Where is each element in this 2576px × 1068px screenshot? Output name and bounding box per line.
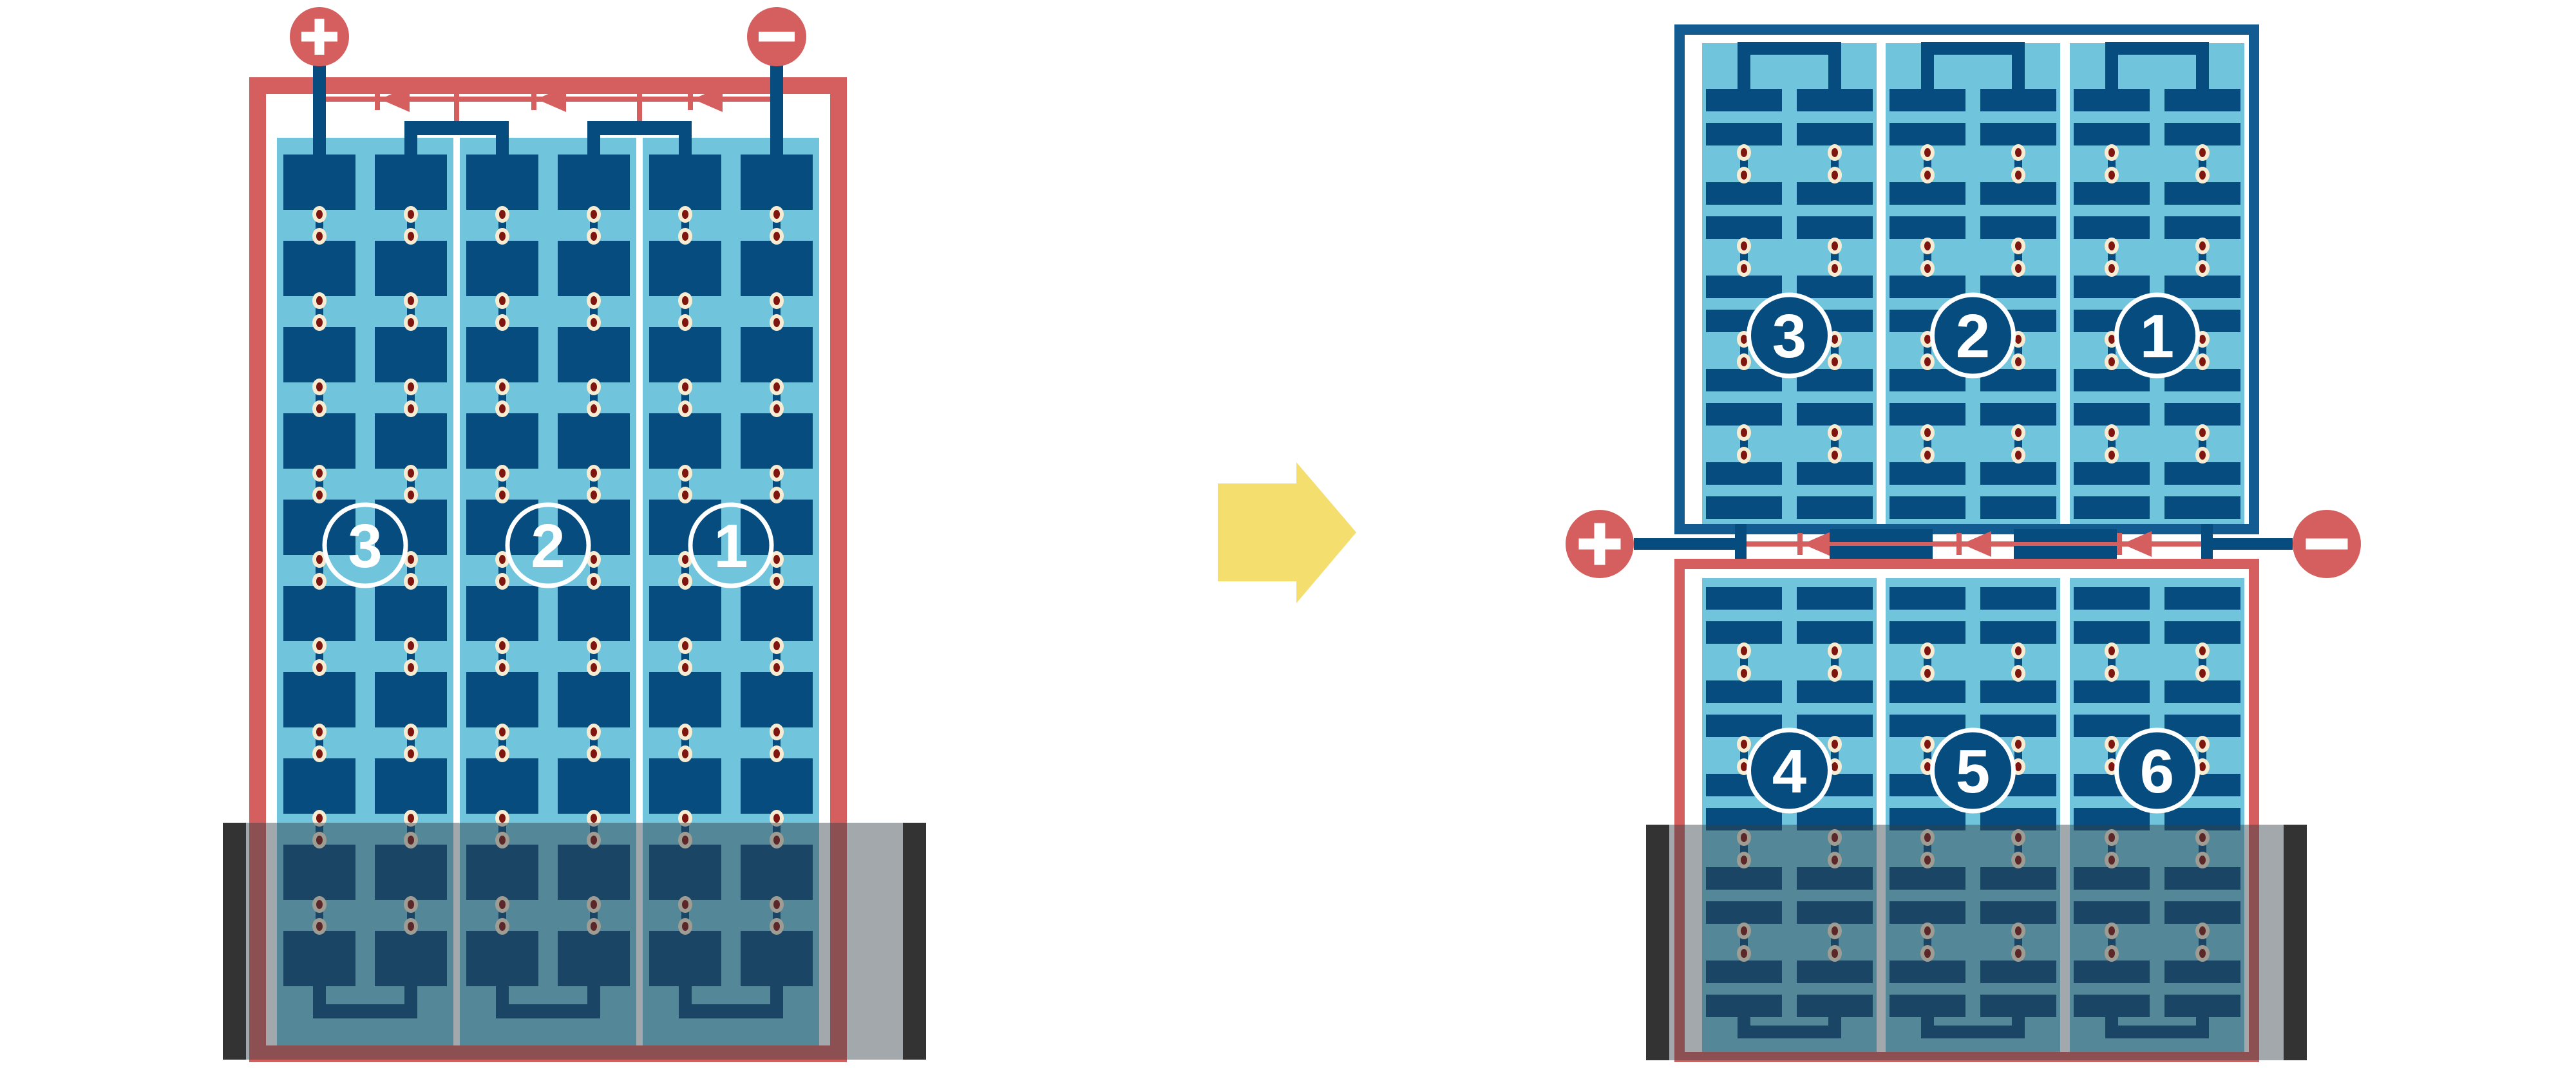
solder-dot-core [1924, 171, 1931, 180]
cell [283, 413, 355, 469]
solder-dot-core [682, 469, 688, 478]
bypass-diode-rail [1747, 531, 2201, 557]
solder-dot-core [2108, 669, 2115, 678]
half-cell [2074, 462, 2150, 485]
solder-dot-core [499, 491, 506, 500]
terminal-glyph-v [315, 19, 325, 55]
solder-dot-core [591, 232, 597, 241]
solder-dot-core [408, 663, 414, 672]
half-cell [1889, 680, 1965, 703]
cell [283, 586, 355, 641]
diode-cathode-bar [375, 88, 380, 110]
solder-dot-core [682, 641, 688, 650]
solder-dot-core [316, 210, 323, 219]
solder-dot-core [499, 814, 506, 823]
half-cell [1706, 621, 1782, 644]
half-cell [2164, 123, 2240, 145]
u-bar [2105, 42, 2209, 55]
terminal-glyph-h [759, 32, 795, 42]
cell [375, 327, 447, 382]
solder-dot-core [408, 641, 414, 650]
cell [375, 241, 447, 296]
solder-dot-core [591, 404, 597, 413]
cell [466, 241, 538, 296]
u-leg [1921, 42, 1934, 97]
cell [741, 586, 813, 641]
solder-dot-core [1924, 646, 1931, 655]
solder-dot-core [591, 555, 597, 564]
diode-triangle [1962, 531, 1991, 557]
half-cell [1797, 276, 1873, 298]
solder-dot-core [2108, 451, 2115, 460]
cell [375, 672, 447, 727]
half-cell [1889, 496, 1965, 519]
solder-dot-core [2108, 646, 2115, 655]
half-cell [1706, 680, 1782, 703]
string-label: 5 [1956, 737, 1990, 806]
solder-dot-core [316, 555, 323, 564]
bridge-leg [679, 121, 692, 162]
terminal-wire [2201, 538, 2293, 550]
half-cell [2164, 403, 2240, 426]
solder-dot-core [408, 577, 414, 586]
half-cell [1706, 123, 1782, 145]
solder-dot-core [682, 210, 688, 219]
diode-triangle [2122, 531, 2152, 557]
half-cell [1980, 182, 2056, 205]
solder-dot-core [1741, 171, 1747, 180]
half-cell [2164, 182, 2240, 205]
solder-dot-core [2108, 241, 2115, 250]
solder-dot-core [1741, 264, 1747, 273]
cell [649, 413, 721, 469]
cell [558, 758, 630, 814]
solder-dot-core [591, 318, 597, 327]
terminal-minus-icon [2293, 510, 2361, 578]
solder-dot-core [499, 232, 506, 241]
solder-dot-core [2199, 451, 2206, 460]
bypass-diode-icon [1956, 531, 1991, 557]
cell [375, 155, 447, 210]
solder-dot-core [1832, 669, 1838, 678]
solder-dot-core [773, 296, 780, 305]
solder-dot-core [316, 749, 323, 758]
solder-dot-core [682, 296, 688, 305]
bridge-leg [496, 121, 509, 162]
u-bar [1738, 42, 1841, 55]
string-label: 6 [2140, 737, 2174, 806]
solder-dot-core [1832, 451, 1838, 460]
solder-dot-core [773, 577, 780, 586]
solder-dot-core [2108, 740, 2115, 749]
solder-dot-core [1924, 264, 1931, 273]
solder-dot-core [408, 491, 414, 500]
solder-dot-core [2015, 451, 2022, 460]
solder-dot-core [1924, 335, 1931, 344]
solder-dot-core [773, 491, 780, 500]
u-leg [2105, 42, 2118, 97]
solder-dot-core [2108, 171, 2115, 180]
string-badge: 1 [2117, 295, 2198, 376]
diagram-canvas: 321321456 [0, 0, 2576, 1068]
string-label: 3 [348, 512, 382, 581]
solder-dot-core [2199, 148, 2206, 157]
half-cell [2074, 276, 2150, 298]
solder-dot-core [2199, 646, 2206, 655]
solder-dot-core [773, 641, 780, 650]
solder-dot-core [2015, 669, 2022, 678]
cell [283, 758, 355, 814]
cell [466, 758, 538, 814]
solder-dot-core [499, 663, 506, 672]
half-cell [1980, 216, 2056, 239]
solder-dot-core [1832, 148, 1838, 157]
cell [466, 672, 538, 727]
half-cell [2164, 276, 2240, 298]
cell [283, 241, 355, 296]
cell [558, 586, 630, 641]
solder-dot-core [408, 296, 414, 305]
solder-dot-core [2015, 357, 2022, 366]
half-cell [2074, 123, 2150, 145]
cell [466, 413, 538, 469]
solder-dot-core [2015, 171, 2022, 180]
transform-arrow-icon [1218, 462, 1356, 603]
cell [558, 672, 630, 727]
cell [741, 672, 813, 727]
solder-dot-core [1832, 335, 1838, 344]
solder-dot-core [2108, 428, 2115, 437]
solder-dot-core [316, 469, 323, 478]
bridge-leg [404, 121, 417, 162]
solder-dot-core [1741, 148, 1747, 157]
solder-dot-core [408, 469, 414, 478]
half-cell [1706, 587, 1782, 610]
cell [741, 241, 813, 296]
diode-junction-tick [454, 90, 459, 121]
half-cell [1797, 496, 1873, 519]
half-cell [1980, 680, 2056, 703]
solder-dot-core [499, 641, 506, 650]
solder-dot-core [2108, 357, 2115, 366]
shade-group [1646, 825, 2307, 1060]
cell [649, 327, 721, 382]
solder-dot-core [773, 318, 780, 327]
solder-dot-core [316, 232, 323, 241]
solder-dot-core [773, 663, 780, 672]
solder-dot-core [773, 232, 780, 241]
solder-dot-core [591, 814, 597, 823]
diode-cathode-bar [531, 88, 536, 110]
solder-dot-core [2199, 357, 2206, 366]
solder-dot-core [316, 491, 323, 500]
solder-dot-core [591, 210, 597, 219]
solder-dot-core [408, 814, 414, 823]
solder-dot-core [773, 469, 780, 478]
solder-dot-core [2199, 740, 2206, 749]
solder-dot-core [2199, 171, 2206, 180]
solder-dot-core [1741, 357, 1747, 366]
solder-dot-core [1924, 762, 1931, 771]
string-label: 1 [714, 512, 748, 581]
bridge-bar [404, 121, 509, 135]
solder-dot-core [408, 210, 414, 219]
diode-cathode-bar [688, 88, 693, 110]
diode-cathode-bar [1956, 533, 1962, 555]
bridge-leg [587, 121, 600, 162]
solder-dot-core [682, 491, 688, 500]
solder-dot-core [1832, 740, 1838, 749]
solder-dot-core [2015, 148, 2022, 157]
terminal-stem [770, 64, 783, 162]
solder-dot-core [591, 749, 597, 758]
string-label: 1 [2140, 302, 2174, 371]
solar-wiring-diagram: 321321456 [0, 0, 2576, 1068]
solder-dot-core [2199, 335, 2206, 344]
half-cell [2164, 462, 2240, 485]
solder-dot-core [499, 210, 506, 219]
solder-dot-core [773, 727, 780, 736]
solder-dot-core [682, 749, 688, 758]
solder-dot-core [2199, 241, 2206, 250]
solder-dot-core [682, 814, 688, 823]
u-leg [1738, 42, 1750, 97]
solder-dot-core [591, 641, 597, 650]
solder-dot-core [499, 318, 506, 327]
string-label: 2 [1956, 302, 1990, 371]
solder-dot-core [2015, 428, 2022, 437]
solder-dot-core [1832, 241, 1838, 250]
solder-dot-core [316, 814, 323, 823]
cell [649, 155, 721, 210]
shade-group [223, 823, 926, 1060]
solder-dot-core [1832, 357, 1838, 366]
half-cell [1797, 462, 1873, 485]
half-cell [1797, 680, 1873, 703]
solder-dot-core [499, 727, 506, 736]
solder-dot-core [682, 577, 688, 586]
diode-cathode-bar [1797, 533, 1803, 555]
solder-dot-core [591, 577, 597, 586]
solder-dot-core [2015, 740, 2022, 749]
solder-dot-core [2015, 264, 2022, 273]
half-cell [1797, 123, 1873, 145]
solder-dot-core [1741, 669, 1747, 678]
solder-dot-core [2015, 762, 2022, 771]
diode-junction-tick [637, 90, 642, 121]
solder-dot-core [2108, 335, 2115, 344]
half-cell [1797, 587, 1873, 610]
half-cell [1889, 403, 1965, 426]
solder-dot-core [591, 663, 597, 672]
terminal-plus-icon [1566, 510, 1634, 578]
solder-dot-core [1741, 241, 1747, 250]
solder-dot-core [773, 382, 780, 391]
solder-dot-core [591, 727, 597, 736]
shade-bar [2284, 825, 2307, 1060]
half-cell [2164, 621, 2240, 644]
diode-triangle [1803, 531, 1832, 557]
cell [741, 155, 813, 210]
cell [375, 586, 447, 641]
solder-dot-core [408, 232, 414, 241]
solder-dot-core [773, 404, 780, 413]
cell [283, 155, 355, 210]
half-cell [1980, 462, 2056, 485]
terminal-glyph-v [1595, 523, 1605, 565]
terminal-stem [313, 64, 326, 162]
half-cell [2074, 496, 2150, 519]
solder-dot-core [499, 749, 506, 758]
terminal-minus-icon [747, 7, 806, 66]
cell [466, 586, 538, 641]
string-badge: 5 [1933, 730, 2014, 811]
solder-dot-core [1924, 451, 1931, 460]
half-cell [2164, 680, 2240, 703]
cell [558, 413, 630, 469]
half-cell [1797, 182, 1873, 205]
string-badge: 6 [2117, 730, 2198, 811]
solder-dot-core [2199, 762, 2206, 771]
u-leg [1828, 42, 1841, 97]
half-cell [1797, 403, 1873, 426]
cell [466, 155, 538, 210]
half-cell [1706, 403, 1782, 426]
solder-dot-core [591, 491, 597, 500]
cell [649, 672, 721, 727]
solder-dot-core [682, 663, 688, 672]
cell [649, 758, 721, 814]
half-cell [1889, 123, 1965, 145]
solder-dot-core [408, 749, 414, 758]
cell [558, 155, 630, 210]
solder-dot-core [316, 663, 323, 672]
half-cell [1797, 216, 1873, 239]
shade-bar [1646, 825, 1669, 1060]
solder-dot-core [1741, 428, 1747, 437]
right-module: 321456 [1566, 30, 2361, 1060]
half-cell [1889, 182, 1965, 205]
solder-dot-core [316, 727, 323, 736]
half-cell [1706, 182, 1782, 205]
cell [558, 241, 630, 296]
solder-dot-core [1924, 148, 1931, 157]
solder-dot-core [408, 382, 414, 391]
solder-dot-core [591, 382, 597, 391]
junction-tab [2014, 529, 2117, 542]
half-cell [2164, 216, 2240, 239]
half-cell [1706, 462, 1782, 485]
solder-dot-core [316, 318, 323, 327]
half-cell [1980, 276, 2056, 298]
solder-dot-core [2108, 264, 2115, 273]
string-label: 4 [1772, 737, 1806, 806]
half-cell [1889, 216, 1965, 239]
solder-dot-core [2015, 241, 2022, 250]
solder-dot-core [2199, 428, 2206, 437]
solder-dot-core [408, 727, 414, 736]
solder-dot-core [773, 555, 780, 564]
u-leg [2196, 42, 2209, 97]
half-cell [2164, 587, 2240, 610]
solder-dot-core [2015, 335, 2022, 344]
solder-dot-core [408, 318, 414, 327]
solder-dot-core [408, 404, 414, 413]
string-badge: 4 [1749, 730, 1830, 811]
solder-dot-core [1741, 335, 1747, 344]
string-label: 2 [531, 512, 565, 581]
string-badge: 3 [1749, 295, 1830, 376]
shade-bar [903, 823, 926, 1060]
half-cell [1980, 621, 2056, 644]
junction-tab [1830, 546, 1933, 559]
cell [375, 413, 447, 469]
junction-tab [2014, 546, 2117, 559]
solder-dot-core [682, 382, 688, 391]
solder-dot-core [591, 469, 597, 478]
solder-dot-core [1832, 646, 1838, 655]
half-cell [1980, 403, 2056, 426]
solder-dot-core [499, 404, 506, 413]
half-cell [1706, 496, 1782, 519]
cell [741, 413, 813, 469]
solder-dot-core [2015, 646, 2022, 655]
shade-overlay [1646, 825, 2307, 1060]
cell [283, 672, 355, 727]
solder-dot-core [1924, 241, 1931, 250]
bypass-diode-icon [2117, 531, 2152, 557]
solder-dot-core [1832, 264, 1838, 273]
cell [375, 758, 447, 814]
solder-dot-core [2199, 669, 2206, 678]
half-cell [1706, 216, 1782, 239]
half-cell [2074, 587, 2150, 610]
cell [466, 327, 538, 382]
solder-dot-core [2108, 762, 2115, 771]
u-leg [2012, 42, 2025, 97]
solder-dot-core [773, 210, 780, 219]
solder-dot-core [1741, 646, 1747, 655]
half-cell [1980, 123, 2056, 145]
cell [649, 586, 721, 641]
half-cell [1889, 462, 1965, 485]
solder-dot-core [1924, 357, 1931, 366]
left-module: 321 [223, 7, 926, 1060]
half-cell [1980, 496, 2056, 519]
solder-dot-core [316, 641, 323, 650]
solder-dot-core [499, 296, 506, 305]
solder-dot-core [591, 296, 597, 305]
solder-dot-core [499, 555, 506, 564]
solder-dot-core [682, 404, 688, 413]
cell [558, 327, 630, 382]
solder-dot-core [408, 555, 414, 564]
half-cell [1706, 276, 1782, 298]
half-cell [2074, 621, 2150, 644]
solder-dot-core [682, 727, 688, 736]
solder-dot-core [1832, 762, 1838, 771]
half-cell [1797, 621, 1873, 644]
solder-dot-core [682, 555, 688, 564]
half-cell [2074, 216, 2150, 239]
cell [649, 241, 721, 296]
solder-dot-core [316, 404, 323, 413]
solder-dot-core [773, 814, 780, 823]
solder-dot-core [1832, 171, 1838, 180]
half-cell [1889, 587, 1965, 610]
u-bar [1921, 42, 2025, 55]
solder-dot-core [1741, 451, 1747, 460]
